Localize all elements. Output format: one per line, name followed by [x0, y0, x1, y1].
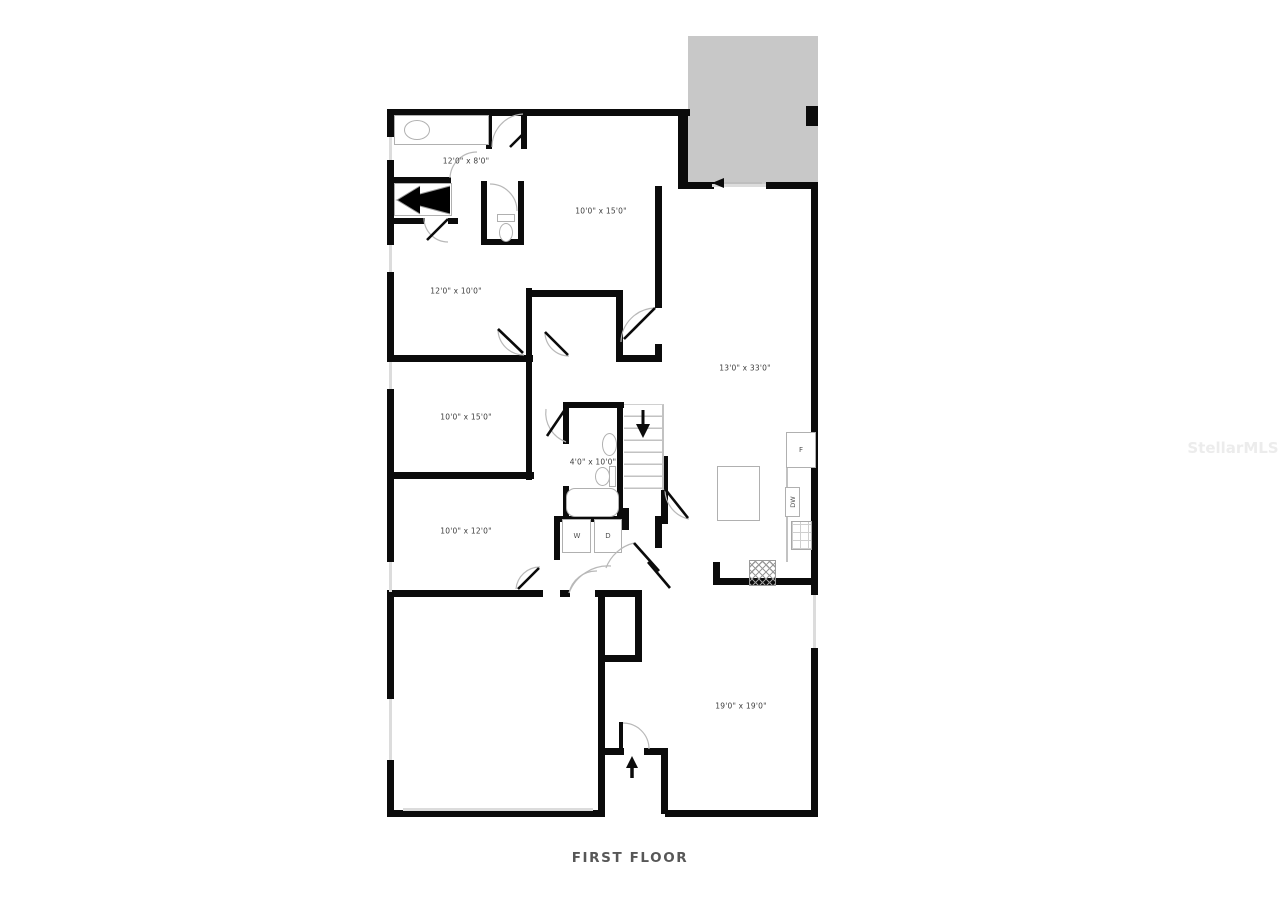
- wall-segment: [563, 402, 569, 444]
- bathtub: [566, 488, 619, 517]
- closet-wardrobe: [394, 183, 452, 216]
- window: [389, 137, 392, 160]
- floor-plan: 12'0" x 8'0" 10'0" x 15'0" 12'0" x 10'0"…: [0, 0, 1280, 906]
- dishwasher-label: DW: [789, 496, 797, 507]
- window: [389, 362, 392, 389]
- door-marker: [806, 106, 818, 126]
- staircase: [624, 404, 664, 490]
- dryer-label: D: [605, 532, 610, 540]
- toilet-tank: [497, 214, 515, 222]
- window: [389, 699, 392, 760]
- wall-segment: [616, 355, 662, 362]
- window: [389, 245, 392, 272]
- wall-segment: [811, 184, 818, 595]
- kitchen-island: [717, 466, 760, 521]
- wall-segment: [598, 655, 642, 662]
- wall-segment: [598, 590, 605, 814]
- wall-segment: [678, 109, 688, 189]
- wall-segment: [518, 181, 524, 245]
- wall-segment: [678, 182, 714, 189]
- wall-segment: [387, 272, 394, 362]
- wall-segment: [526, 288, 532, 480]
- sliding-door: [712, 184, 766, 187]
- wall-segment: [811, 648, 818, 817]
- wall-segment: [766, 182, 818, 189]
- patio-area: [688, 36, 818, 184]
- wall-segment: [661, 748, 668, 814]
- toilet-bowl: [499, 223, 513, 242]
- room-label-hall-bathroom: 4'0" x 10'0": [570, 458, 617, 467]
- wall-segment: [655, 186, 662, 308]
- floor-title: FIRST FLOOR: [572, 850, 689, 866]
- refrigerator-label: F: [799, 446, 803, 454]
- room-label-bedroom-upper: 10'0" x 15'0": [575, 207, 626, 216]
- fireplace: [749, 560, 776, 586]
- wall-segment: [387, 590, 543, 597]
- room-label-primary-bathroom: 12'0" x 8'0": [443, 157, 490, 166]
- wall-segment: [635, 590, 642, 662]
- kitchen-sink: [791, 521, 812, 550]
- room-label-primary-bedroom: 12'0" x 10'0": [430, 287, 481, 296]
- room-label-great-room: 13'0" x 33'0": [719, 364, 770, 373]
- wall-segment: [387, 760, 394, 817]
- bathroom-sink: [602, 433, 617, 456]
- room-label-bedroom-lower: 10'0" x 12'0": [440, 527, 491, 536]
- wall-segment: [387, 160, 394, 245]
- wall-segment: [563, 402, 624, 408]
- wall-segment: [481, 181, 487, 245]
- wall-segment: [390, 472, 534, 479]
- watermark: StellarMLS: [1187, 439, 1278, 457]
- wall-segment: [554, 516, 560, 560]
- wall-segment: [387, 109, 394, 137]
- wall-segment: [387, 810, 605, 817]
- window: [813, 595, 816, 648]
- wall-segment: [387, 592, 394, 699]
- wall-segment: [616, 290, 623, 360]
- room-label-family-room: 19'0" x 19'0": [715, 702, 766, 711]
- washer-label: W: [574, 532, 581, 540]
- bathroom-sink: [404, 120, 430, 140]
- wall-segment: [665, 810, 818, 817]
- wall-segment: [713, 562, 720, 580]
- garage-door: [403, 808, 593, 811]
- wall-segment: [387, 355, 533, 362]
- wall-segment: [528, 290, 622, 297]
- toilet-tank: [609, 466, 616, 487]
- wall-segment: [655, 516, 662, 548]
- toilet-bowl: [595, 467, 610, 486]
- floor-plan-page: 12'0" x 8'0" 10'0" x 15'0" 12'0" x 10'0"…: [0, 0, 1280, 906]
- wall-segment: [387, 218, 425, 224]
- entry-door-leaf: [619, 722, 623, 750]
- entry-arrow: [626, 756, 638, 778]
- wall-segment: [621, 508, 629, 530]
- room-label-bedroom-middle: 10'0" x 15'0": [440, 413, 491, 422]
- wall-segment: [521, 109, 527, 149]
- wall-segment: [448, 218, 458, 224]
- window: [389, 562, 392, 592]
- wall-segment: [560, 590, 570, 597]
